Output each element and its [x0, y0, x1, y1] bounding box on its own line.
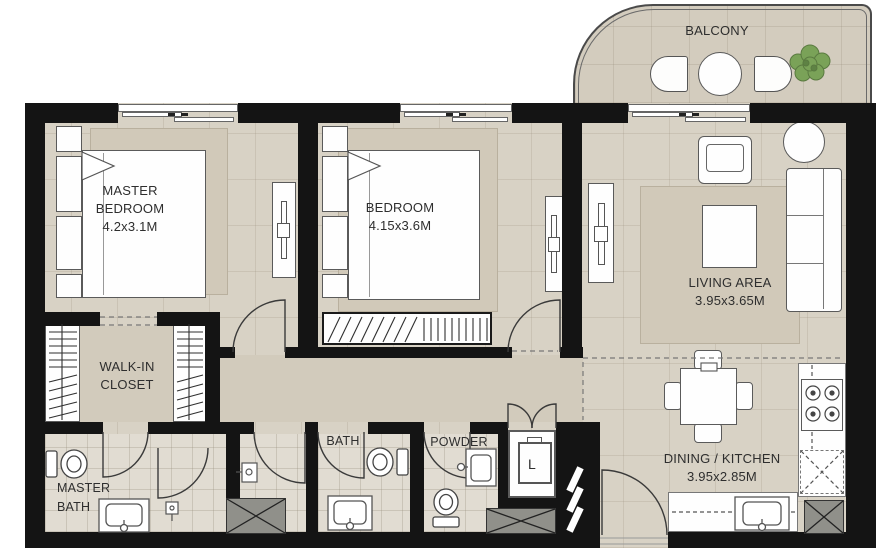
wall-bath-top-1: [45, 422, 103, 434]
living-area-dimensions: 3.95x3.65M: [662, 292, 798, 310]
wall-bedroom-living: [562, 123, 582, 347]
master-bedroom-dimensions: 4.2x3.1M: [62, 218, 198, 236]
wall-bottom-2: [668, 532, 876, 548]
walk-in-closet-label: WALK-IN CLOSET: [59, 358, 195, 394]
master-nightstand-bottom: [56, 274, 82, 298]
laundry-label: L: [508, 455, 556, 473]
wall-closet-top-1: [45, 312, 100, 326]
living-tv-unit: [588, 183, 614, 283]
dining-chair-east: [735, 382, 753, 410]
dining-kitchen-label: DINING / KITCHEN 3.95x2.85M: [652, 450, 792, 486]
bedroom-wardrobe: [322, 312, 492, 345]
bath-label: BATH: [320, 432, 366, 450]
wall-masterbath-right: [226, 434, 240, 500]
kitchen-stove: [801, 379, 843, 431]
dining-chair-north: [694, 350, 722, 370]
living-area-label: LIVING AREA 3.95x3.65M: [662, 274, 798, 310]
wall-lobby-bath: [306, 422, 318, 532]
balcony-chair-right: [754, 56, 792, 92]
floor-plan: BALCONY: [0, 0, 884, 550]
wall-top-1: [25, 103, 118, 123]
wall-bath-top-4: [368, 422, 424, 434]
kitchen-counter-bottom: [668, 492, 798, 532]
service-shaft-1: [226, 498, 286, 534]
powder-label: POWDER: [424, 433, 494, 451]
master-bath-label: MASTER BATH: [57, 479, 137, 517]
master-bedroom-label: MASTER BEDROOM 4.2x3.1M: [62, 182, 198, 236]
wall-hall-a: [218, 347, 235, 358]
living-armchair: [698, 136, 752, 184]
wall-hall-d: [560, 347, 583, 358]
bedroom-nightstand-bottom: [322, 274, 348, 298]
service-shaft-2: [486, 508, 556, 534]
bedroom-nightstand-top: [322, 126, 348, 152]
wall-hall-b: [285, 347, 318, 358]
wall-powder-laundry: [498, 422, 508, 508]
wall-bath-top-2: [148, 422, 254, 434]
wall-bath-powder: [410, 434, 424, 532]
balcony-label: BALCONY: [655, 22, 779, 40]
dining-kitchen-dimensions: 3.95x2.85M: [652, 468, 792, 486]
wall-hall-c: [318, 347, 512, 358]
balcony: BALCONY: [573, 4, 872, 103]
dining-table: [680, 368, 737, 425]
balcony-table: [698, 52, 742, 96]
wall-masterbed-bedroom: [298, 123, 318, 347]
bedroom-window: [400, 103, 512, 123]
kitchen-appliance: [800, 450, 844, 494]
wall-top-3: [512, 103, 628, 123]
dining-chair-south: [694, 423, 722, 443]
master-tv-unit: [272, 182, 296, 278]
balcony-chair-left: [650, 56, 688, 92]
master-bedroom-window: [118, 103, 238, 123]
living-area-window: [628, 103, 750, 123]
bedroom-label: BEDROOM 4.15x3.6M: [332, 199, 468, 235]
wall-left: [25, 103, 45, 548]
master-nightstand-top: [56, 126, 82, 152]
bedroom-dimensions: 4.15x3.6M: [332, 217, 468, 235]
wall-top-2: [238, 103, 400, 123]
wall-right: [846, 103, 876, 548]
living-side-table: [783, 121, 825, 163]
service-shaft-3: [804, 500, 844, 534]
wall-closet-right: [205, 312, 220, 422]
living-coffee-table: [702, 205, 757, 268]
hall-floor: [218, 355, 583, 422]
wall-bottom-1: [25, 532, 600, 548]
bedroom-tv-unit: [545, 196, 563, 292]
